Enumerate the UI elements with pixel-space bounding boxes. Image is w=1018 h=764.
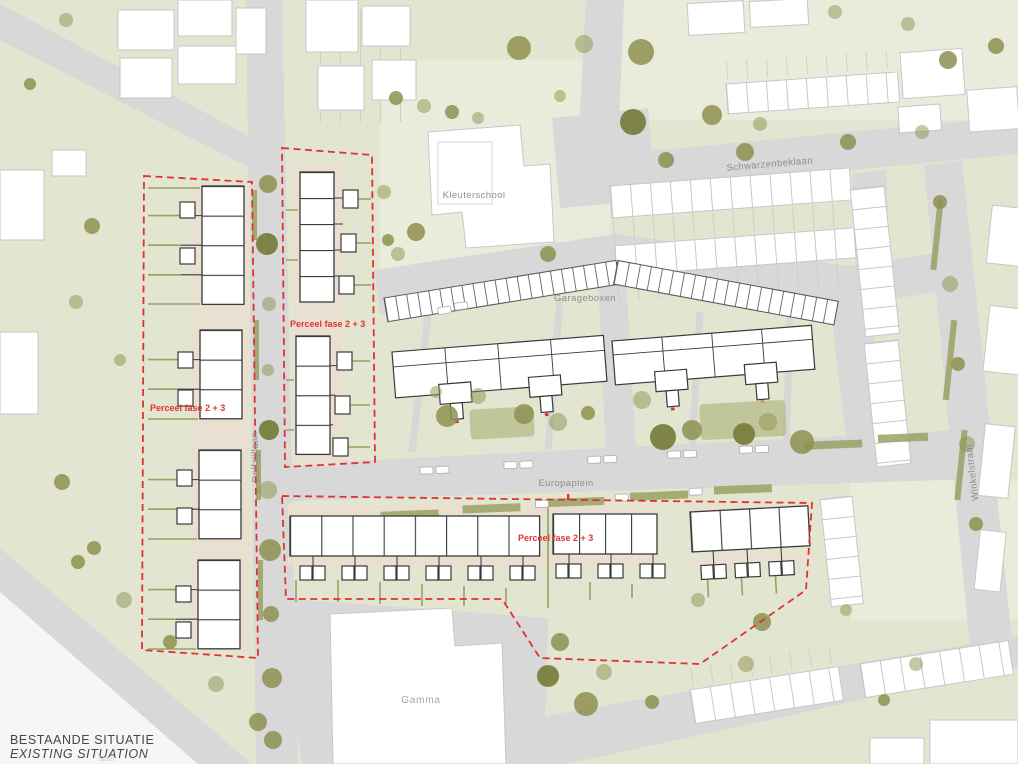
street-label-delfzijllaan: Delfzijllaan bbox=[250, 432, 262, 483]
plan-watermark: Sport bbox=[98, 756, 116, 763]
tree bbox=[658, 152, 674, 168]
garden-shed bbox=[611, 564, 623, 578]
context-building bbox=[120, 58, 172, 98]
row-houses bbox=[290, 516, 540, 556]
tree bbox=[633, 391, 651, 409]
tree bbox=[259, 481, 277, 499]
garden-shed bbox=[735, 563, 748, 578]
row-houses bbox=[690, 506, 810, 552]
tree bbox=[551, 633, 569, 651]
garden-shed bbox=[468, 566, 480, 580]
garden-sheds-row bbox=[300, 564, 665, 580]
garden-shed bbox=[769, 561, 782, 576]
context-building bbox=[749, 0, 808, 27]
tree bbox=[263, 606, 279, 622]
tree bbox=[259, 539, 281, 561]
garden-shed bbox=[177, 508, 192, 524]
parked-car bbox=[454, 302, 468, 311]
tree bbox=[262, 297, 276, 311]
tree bbox=[759, 413, 777, 431]
tree bbox=[54, 474, 70, 490]
building-label-kleuterschool: Kleuterschool bbox=[443, 190, 506, 201]
tree bbox=[969, 517, 983, 531]
garden-shed bbox=[397, 566, 409, 580]
tree bbox=[790, 430, 814, 454]
garden-shed bbox=[556, 564, 568, 578]
tree bbox=[549, 413, 567, 431]
tree bbox=[915, 125, 929, 139]
parked-car bbox=[420, 467, 433, 475]
tree bbox=[628, 39, 654, 65]
tree bbox=[988, 38, 1004, 54]
tree bbox=[650, 424, 676, 450]
garden-shed bbox=[782, 561, 795, 576]
tree bbox=[878, 694, 890, 706]
tree bbox=[470, 388, 486, 404]
parked-car bbox=[604, 455, 617, 463]
tree bbox=[259, 420, 279, 440]
row-houses bbox=[296, 336, 330, 454]
tree bbox=[391, 247, 405, 261]
row-houses bbox=[300, 172, 334, 302]
garden-shed bbox=[598, 564, 610, 578]
tree bbox=[264, 731, 282, 749]
context-building bbox=[974, 530, 1006, 592]
tree bbox=[472, 112, 484, 124]
tree bbox=[407, 223, 425, 241]
tree bbox=[69, 295, 83, 309]
building-label-gamma: Gamma bbox=[401, 695, 441, 706]
tree bbox=[445, 105, 459, 119]
tree bbox=[828, 5, 842, 19]
tree bbox=[116, 592, 132, 608]
tree bbox=[702, 105, 722, 125]
building-label-garageboxen: Garageboxen bbox=[554, 293, 616, 304]
tree bbox=[575, 35, 593, 53]
parcel-label-3: Perceel fase 2 + 3 bbox=[518, 533, 593, 543]
garden-shed bbox=[714, 564, 727, 579]
garden-shed bbox=[177, 470, 192, 486]
garden-shed bbox=[176, 586, 191, 602]
tree bbox=[738, 656, 754, 672]
garden-shed bbox=[339, 276, 354, 294]
garden-shed bbox=[426, 566, 438, 580]
garden-shed bbox=[653, 564, 665, 578]
parked-car bbox=[535, 500, 548, 508]
tree bbox=[581, 406, 595, 420]
context-building bbox=[0, 332, 38, 414]
garden-shed bbox=[569, 564, 581, 578]
tree bbox=[24, 78, 36, 90]
parked-car bbox=[438, 306, 452, 315]
tree bbox=[736, 143, 754, 161]
parked-car bbox=[667, 451, 680, 459]
garden-shed bbox=[343, 190, 358, 208]
garden-shed bbox=[523, 566, 535, 580]
plan-subtitle: EXISTING SITUATION bbox=[10, 747, 149, 761]
tree bbox=[256, 233, 278, 255]
garden-shed bbox=[355, 566, 367, 580]
garden-shed bbox=[481, 566, 493, 580]
context-building bbox=[178, 46, 236, 84]
context-building bbox=[986, 205, 1018, 267]
tree bbox=[163, 635, 177, 649]
garden-shed bbox=[180, 202, 195, 218]
context-building bbox=[118, 10, 174, 50]
garden-shed bbox=[178, 352, 193, 368]
tree bbox=[691, 593, 705, 607]
tree bbox=[249, 713, 267, 731]
tree bbox=[596, 664, 612, 680]
garden-shed bbox=[333, 438, 348, 456]
context-building bbox=[236, 8, 266, 54]
parked-car bbox=[504, 461, 517, 469]
plan-title: BESTAANDE SITUATIE bbox=[10, 733, 154, 747]
tree bbox=[389, 91, 403, 105]
tree bbox=[259, 175, 277, 193]
tree bbox=[262, 668, 282, 688]
tree bbox=[645, 695, 659, 709]
street-label-europaplein: Europaplein bbox=[538, 478, 593, 489]
garden-shed bbox=[384, 566, 396, 580]
tree bbox=[733, 423, 755, 445]
parked-car bbox=[436, 466, 449, 474]
garden-shed bbox=[510, 566, 522, 580]
garden-shed bbox=[337, 352, 352, 370]
row-houses bbox=[202, 186, 244, 304]
tree bbox=[840, 604, 852, 616]
tree bbox=[208, 676, 224, 692]
tree bbox=[753, 613, 771, 631]
tree bbox=[430, 386, 442, 398]
tree bbox=[753, 117, 767, 131]
parked-car bbox=[689, 488, 702, 496]
parcel-label-1: Perceel fase 2 + 3 bbox=[290, 319, 365, 329]
context-building bbox=[52, 150, 86, 176]
context-building bbox=[687, 1, 745, 36]
tree bbox=[59, 13, 73, 27]
garden-shed bbox=[300, 566, 312, 580]
row-houses bbox=[199, 450, 241, 539]
tree bbox=[682, 420, 702, 440]
tree bbox=[87, 541, 101, 555]
tree bbox=[114, 354, 126, 366]
garden-shed bbox=[342, 566, 354, 580]
garden-shed bbox=[701, 565, 714, 580]
tree bbox=[620, 109, 646, 135]
context-building bbox=[362, 6, 410, 46]
tree bbox=[507, 36, 531, 60]
tree bbox=[554, 90, 566, 102]
parked-car bbox=[588, 456, 601, 464]
tree bbox=[262, 364, 274, 376]
tree bbox=[71, 555, 85, 569]
garden-shed bbox=[180, 248, 195, 264]
context-building bbox=[967, 87, 1018, 132]
parked-car bbox=[755, 445, 768, 453]
garden-shed bbox=[341, 234, 356, 252]
garden-shed bbox=[313, 566, 325, 580]
tree bbox=[540, 246, 556, 262]
tree bbox=[951, 357, 965, 371]
tree bbox=[901, 17, 915, 31]
garden-shed bbox=[748, 562, 761, 577]
parked-car bbox=[739, 446, 752, 454]
tree bbox=[933, 195, 947, 209]
tree bbox=[84, 218, 100, 234]
tree bbox=[514, 404, 534, 424]
parked-car bbox=[520, 461, 533, 469]
context-building bbox=[870, 738, 924, 764]
garden-shed bbox=[176, 622, 191, 638]
context-building bbox=[930, 720, 1018, 764]
tree bbox=[436, 405, 458, 427]
tree bbox=[537, 665, 559, 687]
garden-shed bbox=[439, 566, 451, 580]
parked-car bbox=[683, 450, 696, 458]
parcel-label-2: Perceel fase 2 + 3 bbox=[150, 403, 225, 413]
tree bbox=[942, 276, 958, 292]
tree bbox=[574, 692, 598, 716]
context-building bbox=[306, 0, 358, 52]
row-houses bbox=[198, 560, 240, 649]
tree bbox=[909, 657, 923, 671]
garden-shed bbox=[640, 564, 652, 578]
tree bbox=[377, 185, 391, 199]
garden-shed bbox=[335, 396, 350, 414]
context-building bbox=[318, 66, 364, 110]
tree bbox=[939, 51, 957, 69]
context-building bbox=[178, 0, 232, 36]
tree bbox=[840, 134, 856, 150]
tree bbox=[382, 234, 394, 246]
context-building bbox=[0, 170, 44, 240]
tree bbox=[417, 99, 431, 113]
site-plan: Kleuterschool Schwarzenbeklaan Garagebox… bbox=[0, 0, 1018, 764]
